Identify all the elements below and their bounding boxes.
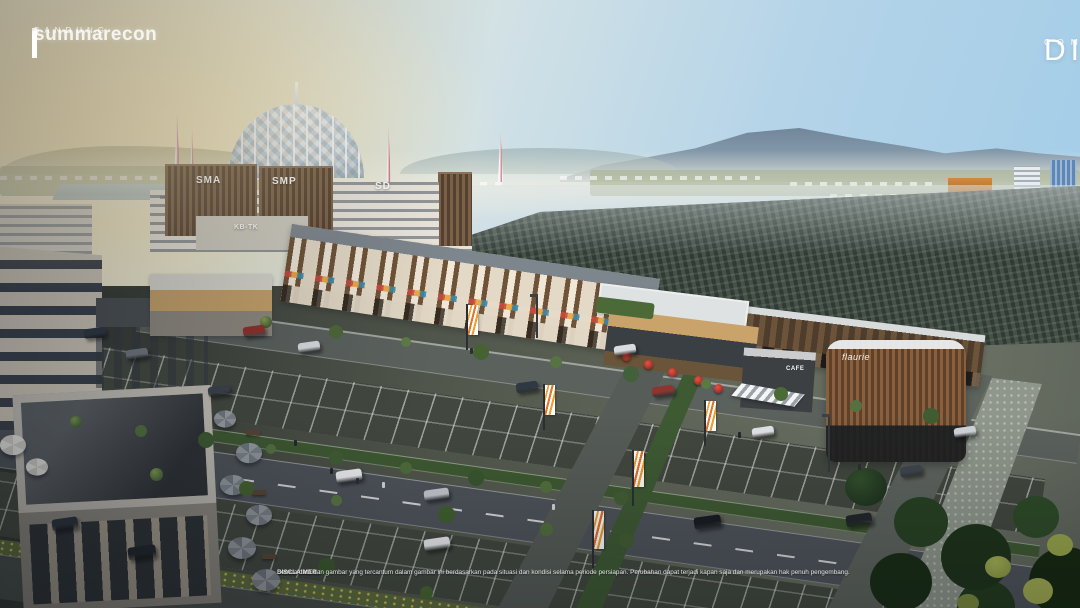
patio-umbrella	[246, 505, 272, 525]
patio-umbrella	[220, 475, 246, 495]
picnic-table	[252, 490, 266, 495]
distant-warehouses	[560, 176, 760, 180]
label-sd: SD	[375, 181, 391, 192]
banner-pole	[466, 304, 468, 350]
pedestrians	[330, 468, 333, 474]
foreground-building	[12, 385, 221, 608]
parking-trees	[150, 468, 163, 481]
label-kbtk: KB-TK	[234, 224, 258, 231]
patio-umbrella	[26, 458, 48, 475]
promo-banner	[594, 511, 604, 549]
street-light	[828, 416, 830, 472]
median-trees	[70, 416, 82, 428]
banner-pole	[543, 384, 545, 430]
promo-banner	[706, 401, 716, 431]
school-tower-sd	[438, 172, 472, 246]
aerial-render-canvas: SMA SMP SD KB-TK CAFE flaurie	[0, 0, 1080, 608]
patio-umbrella	[236, 443, 262, 463]
foreground-building-roof	[12, 385, 216, 513]
cafe-sign: CAFE	[786, 366, 804, 372]
banner-pole	[632, 450, 634, 506]
patio-umbrella	[228, 537, 256, 559]
project-subtitle: COMMERCIAL	[1044, 37, 1080, 47]
red-umbrella	[668, 368, 677, 377]
street-light	[536, 296, 538, 338]
promo-banner	[634, 451, 644, 487]
banner-pole	[592, 510, 594, 568]
red-umbrella	[644, 360, 653, 369]
disclaimer-body: Semua data dan gambar yang tercantum dal…	[277, 569, 850, 576]
picnic-table	[246, 430, 260, 435]
flaurie-sign: flaurie	[842, 352, 870, 362]
picnic-table	[262, 554, 276, 559]
patio-umbrella	[214, 410, 236, 427]
promo-banner	[468, 305, 478, 335]
left-distant-building	[0, 204, 92, 254]
promo-banner	[545, 385, 555, 415]
patio-umbrella	[0, 435, 26, 455]
red-umbrella	[694, 376, 703, 385]
red-umbrella	[714, 384, 723, 393]
yellow-canopy-trees	[985, 556, 1011, 578]
large-foreground-trees	[845, 468, 887, 506]
banner-pole	[704, 400, 706, 446]
patio-umbrella	[252, 569, 280, 591]
label-smp: SMP	[272, 176, 297, 187]
label-sma: SMA	[196, 175, 221, 186]
housing-haze	[380, 185, 1080, 255]
developer-subtitle: BANDUNG	[34, 26, 109, 35]
